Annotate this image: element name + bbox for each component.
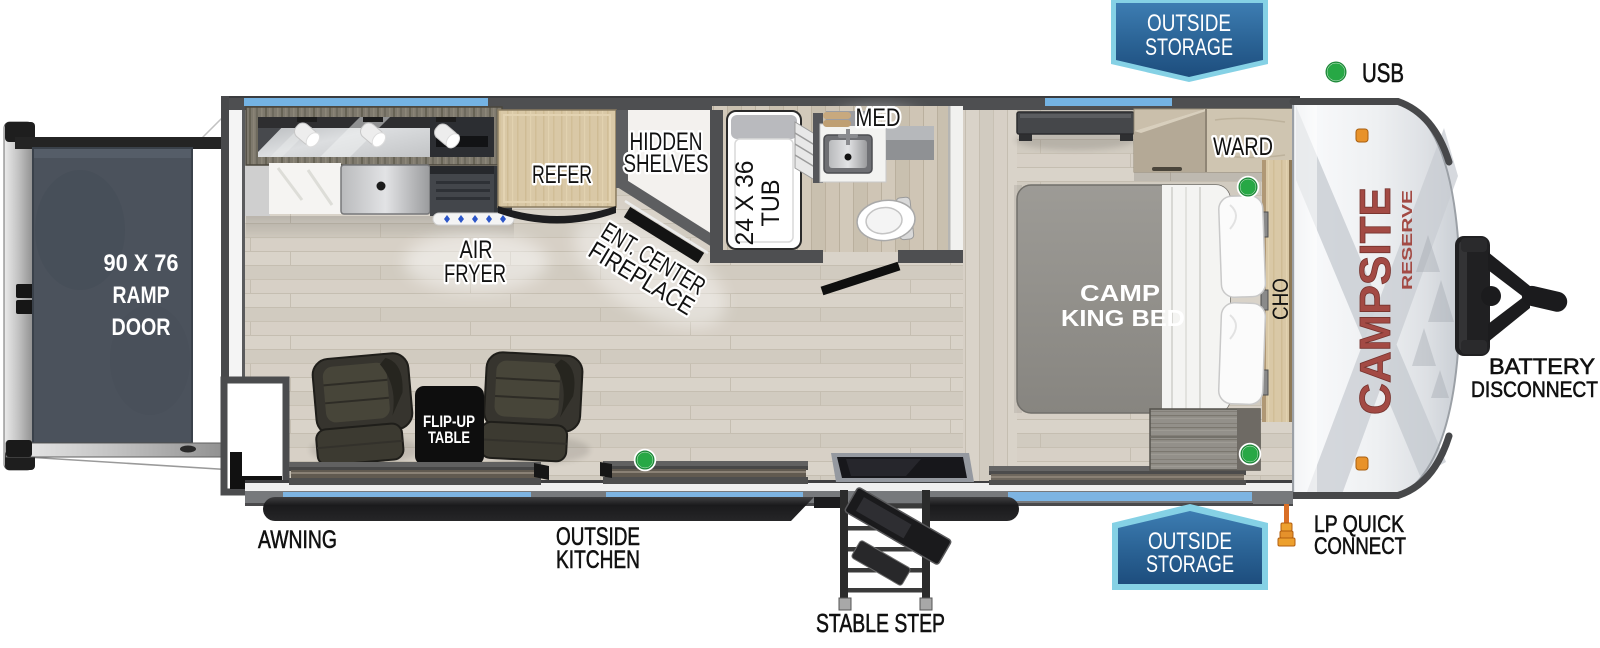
svg-text:CONNECT: CONNECT — [1314, 533, 1406, 560]
svg-text:KING BED: KING BED — [1061, 305, 1185, 331]
svg-text:AWNING: AWNING — [258, 526, 337, 554]
svg-text:OUTSIDE: OUTSIDE — [1147, 10, 1231, 37]
svg-text:TABLE: TABLE — [428, 428, 470, 447]
svg-text:KITCHEN: KITCHEN — [556, 546, 640, 574]
svg-text:DOOR: DOOR — [112, 314, 171, 341]
svg-text:BATTERY: BATTERY — [1489, 354, 1595, 379]
svg-text:DISCONNECT: DISCONNECT — [1471, 377, 1598, 402]
svg-text:SHELVES: SHELVES — [624, 150, 709, 178]
svg-text:CHO: CHO — [1268, 278, 1293, 320]
svg-text:CAMPSITE: CAMPSITE — [1351, 187, 1400, 415]
svg-text:90 X 76: 90 X 76 — [104, 250, 179, 277]
svg-text:RESERVE: RESERVE — [1399, 190, 1416, 290]
svg-text:24 X 36: 24 X 36 — [731, 161, 759, 246]
svg-text:CAMP: CAMP — [1080, 280, 1160, 306]
svg-text:TUB: TUB — [757, 180, 785, 227]
svg-text:STORAGE: STORAGE — [1146, 551, 1234, 578]
svg-text:USB: USB — [1362, 58, 1404, 88]
svg-text:REFER: REFER — [532, 161, 592, 189]
svg-text:STABLE STEP: STABLE STEP — [816, 608, 945, 638]
svg-text:RAMP: RAMP — [113, 282, 170, 309]
svg-text:FRYER: FRYER — [444, 260, 506, 288]
svg-text:STORAGE: STORAGE — [1145, 34, 1233, 61]
svg-text:WARD: WARD — [1213, 133, 1273, 161]
svg-text:MED: MED — [856, 104, 901, 132]
